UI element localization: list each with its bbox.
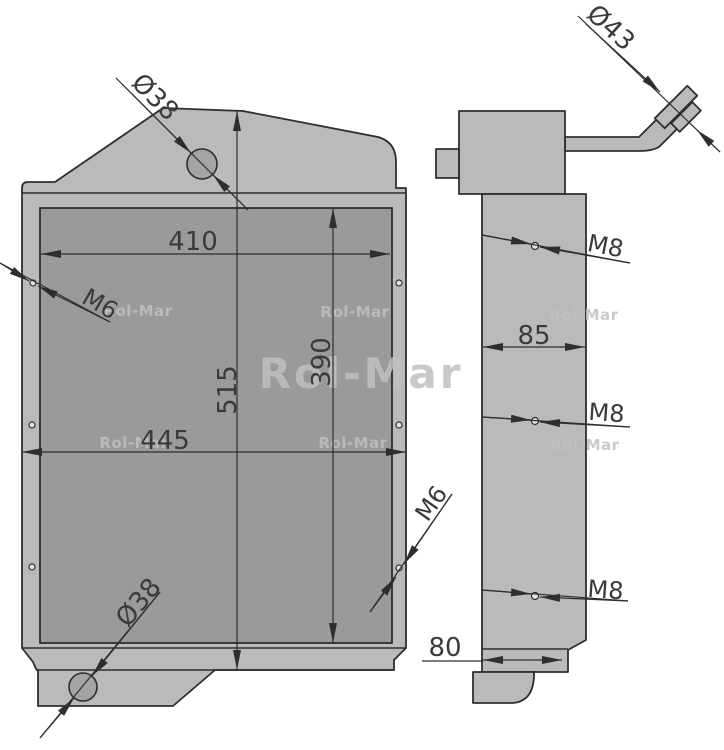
watermark-side-bottom: Rol-Mar [550,436,619,454]
dim-label-core-width: 410 [168,227,218,257]
dim-label-core-height: 390 [307,337,337,387]
radiator-core [40,208,392,643]
mounting-hole-right-middle [396,422,402,428]
dim-label-foot-depth: 80 [428,633,461,663]
dim-label-inlet-pipe: Ø43 [580,0,640,57]
leader-arrow-inlet-pipe-b [697,130,720,152]
mounting-hole-right-top [396,280,402,286]
technical-drawing-canvas: Rol-Mar Rol-Mar Rol-Mar Rol-Mar Rol-Mar … [0,0,724,750]
watermark-front-top-right: Rol-Mar [320,303,389,321]
dim-label-depth: 85 [517,321,550,351]
dim-label-thread-bottom: M8 [587,575,625,605]
dim-label-thread-bottom-right: M6 [410,481,454,527]
dim-label-thread-top: M8 [585,229,626,263]
side-top-tank-tab [436,149,459,178]
dim-label-overall-height: 515 [213,365,243,415]
watermark-side-top: Rol-Mar [549,306,618,324]
radiator-drawing-svg: Rol-Mar Rol-Mar Rol-Mar Rol-Mar Rol-Mar … [0,0,724,750]
side-view: Rol-Mar Rol-Mar [436,86,701,703]
mounting-hole-left-middle [29,422,35,428]
side-body [482,194,586,672]
watermark-center-large: Rol-Mar [259,349,464,398]
side-top-tank [459,111,565,194]
side-foot-bracket [473,672,534,703]
mounting-hole-left-bottom [29,564,35,570]
dim-label-thread-middle: M8 [588,398,626,428]
watermark-front-mid-right: Rol-Mar [318,434,387,452]
dim-label-overall-width: 445 [140,426,190,456]
